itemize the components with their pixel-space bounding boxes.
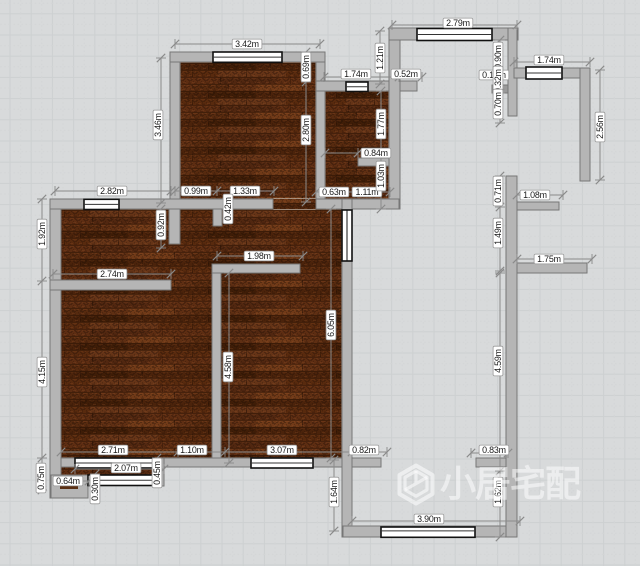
svg-text:1.77m: 1.77m [376, 112, 386, 136]
svg-text:0.90m: 0.90m [493, 45, 503, 69]
svg-text:1.08m: 1.08m [523, 190, 547, 200]
svg-text:0.63m: 0.63m [322, 187, 346, 197]
svg-text:0.83m: 0.83m [482, 445, 506, 455]
svg-text:0.30m: 0.30m [90, 477, 100, 501]
svg-text:1.10m: 1.10m [180, 445, 204, 455]
svg-text:0.99m: 0.99m [184, 186, 208, 196]
svg-text:1.03m: 1.03m [376, 164, 386, 188]
svg-text:2.82m: 2.82m [100, 186, 124, 196]
svg-text:0.84m: 0.84m [364, 148, 388, 158]
svg-text:0.70m: 0.70m [493, 92, 503, 116]
svg-text:1.64m: 1.64m [329, 480, 339, 504]
svg-text:小居宅配: 小居宅配 [440, 463, 581, 504]
svg-text:4.58m: 4.58m [223, 355, 233, 379]
svg-text:0.92m: 0.92m [156, 213, 166, 237]
svg-text:2.07m: 2.07m [114, 463, 138, 473]
svg-text:1.74m: 1.74m [537, 55, 561, 65]
svg-text:2.80m: 2.80m [301, 118, 311, 142]
svg-text:3.42m: 3.42m [235, 39, 259, 49]
svg-text:1.74m: 1.74m [344, 69, 368, 79]
svg-text:0.45m: 0.45m [152, 461, 162, 485]
svg-text:2.74m: 2.74m [100, 269, 124, 279]
svg-text:1.49m: 1.49m [493, 221, 503, 245]
svg-text:6.05m: 6.05m [326, 313, 336, 337]
svg-text:0.52m: 0.52m [394, 69, 418, 79]
svg-text:1.75m: 1.75m [537, 254, 561, 264]
svg-text:0.75m: 0.75m [36, 466, 46, 490]
svg-text:3.90m: 3.90m [417, 514, 441, 524]
svg-text:1.21m: 1.21m [375, 46, 385, 70]
svg-text:0.71m: 0.71m [493, 179, 503, 203]
svg-text:1.98m: 1.98m [247, 251, 271, 261]
svg-text:4.15m: 4.15m [37, 360, 47, 384]
svg-text:2.56m: 2.56m [595, 115, 605, 139]
svg-text:2.79m: 2.79m [446, 18, 470, 28]
svg-text:0.42m: 0.42m [223, 197, 233, 221]
svg-text:4.59m: 4.59m [493, 349, 503, 373]
svg-text:1.33m: 1.33m [233, 186, 257, 196]
svg-text:0.82m: 0.82m [352, 445, 376, 455]
svg-text:0.69m: 0.69m [301, 55, 311, 79]
svg-text:1.92m: 1.92m [37, 222, 47, 246]
svg-text:3.07m: 3.07m [270, 445, 294, 455]
svg-text:3.46m: 3.46m [153, 113, 163, 137]
svg-text:0.64m: 0.64m [56, 476, 80, 486]
svg-text:1.11m: 1.11m [355, 187, 378, 197]
svg-text:2.71m: 2.71m [101, 445, 125, 455]
